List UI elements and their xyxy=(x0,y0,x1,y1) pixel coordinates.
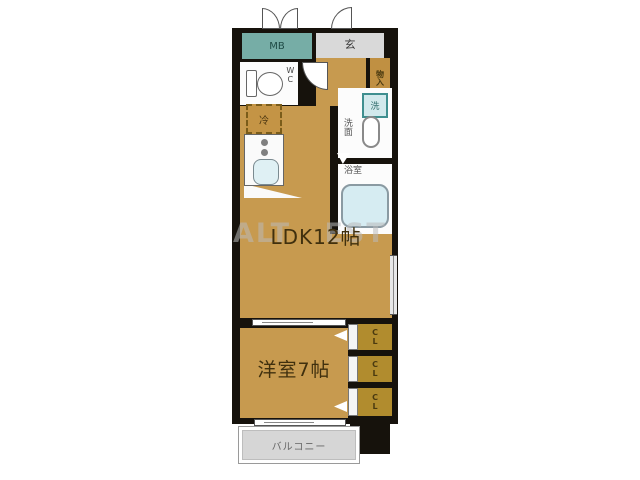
washer-icon: 洗 xyxy=(362,93,388,118)
floorplan-image: MB 玄 物入 WC LDK12帖 ALT EST 冷 洗 洗面 浴室 xyxy=(0,0,640,480)
closet-label: CL xyxy=(371,360,380,378)
closet-1: CL xyxy=(358,324,392,350)
stove-burner-icon xyxy=(261,149,268,156)
western-room-label: 洋室7帖 xyxy=(240,360,348,381)
washroom-label: 洗面 xyxy=(341,118,351,136)
room-entrance: 玄 xyxy=(316,33,384,58)
balcony-label: バルコニー xyxy=(272,438,327,453)
closet-3: CL xyxy=(358,388,392,416)
closet-door-icon xyxy=(348,324,358,350)
closet-door-icon xyxy=(348,388,358,416)
entrance-door-icon xyxy=(331,7,352,29)
double-door-right-icon xyxy=(280,8,298,29)
storage-label: 物入 xyxy=(375,70,386,86)
sliding-door xyxy=(252,319,346,326)
washbasin-icon xyxy=(362,116,380,148)
bathroom-label: 浴室 xyxy=(344,167,362,177)
closet-label: CL xyxy=(371,393,380,411)
toilet-bowl-icon xyxy=(257,72,283,96)
balcony: バルコニー xyxy=(238,426,360,464)
washer-label: 洗 xyxy=(370,99,379,112)
kitchen-counter xyxy=(244,134,284,186)
closet-2: CL xyxy=(358,356,392,382)
wc-label: WC xyxy=(285,66,294,84)
room-meter-box: MB xyxy=(242,33,312,59)
fridge-space: 冷 xyxy=(246,104,282,134)
balcony-floor: バルコニー xyxy=(242,430,356,460)
fridge-label: 冷 xyxy=(259,112,269,127)
closet-label: CL xyxy=(371,328,380,346)
entrance-label: 玄 xyxy=(345,39,356,51)
toilet-tank-icon xyxy=(246,70,257,97)
ldk-label: LDK12帖 xyxy=(240,226,392,248)
balcony-window xyxy=(254,419,346,426)
kitchen-sink-icon xyxy=(253,159,279,185)
double-door-left-icon xyxy=(262,8,280,29)
closet-door-icon xyxy=(348,356,358,382)
meter-box-label: MB xyxy=(269,41,285,52)
stove-burner-icon xyxy=(261,139,268,146)
window-right xyxy=(390,255,397,315)
